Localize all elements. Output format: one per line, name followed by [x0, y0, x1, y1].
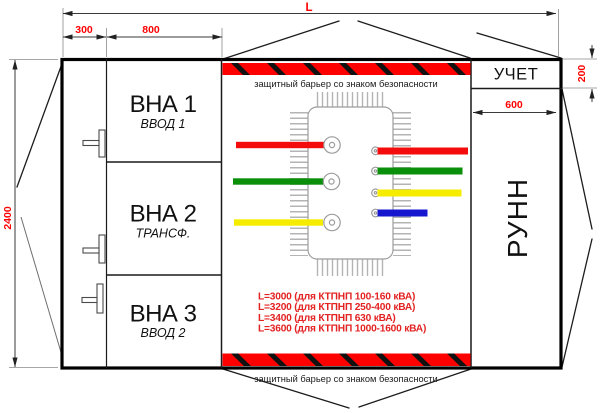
vna2-subtitle: ТРАНСФ.	[136, 227, 191, 241]
dimension-label-200: 200	[576, 65, 588, 83]
chip-pins-bottom	[316, 259, 386, 276]
safety-barrier-top: защитный барьер со знаком безопасности	[223, 63, 471, 89]
dimension-label-L: L	[305, 2, 312, 14]
dimension-uchet-height: 200	[563, 45, 597, 102]
busbar-right-blue	[378, 210, 428, 217]
dimension-label-2400: 2400	[2, 206, 14, 230]
busbar-right-green	[378, 168, 463, 175]
vna1-title: ВНА 1	[130, 91, 197, 118]
door-handle-vna1	[83, 130, 105, 157]
dimension-runn-width: 600	[473, 99, 556, 113]
length-option-4: L=3600 (для КТПНП 1000-1600 кВА)	[258, 324, 426, 335]
barrier-label-top: защитный барьер со знаком безопасности	[254, 79, 438, 89]
vna3-subtitle: ВВОД 2	[141, 326, 186, 340]
chip-pins-right	[393, 112, 411, 256]
section-vna2: ВНА 2 ТРАНСФ.	[130, 201, 197, 241]
busbar-right-yellow	[378, 190, 462, 197]
door-handle-vna2	[83, 235, 105, 263]
length-variants: L=3000 (для КТПНП 100-160 кВА) L=3200 (д…	[258, 292, 426, 335]
section-vna3: ВНА 3 ВВОД 2	[130, 301, 197, 341]
technical-drawing: L 300 800 2400 200 600	[0, 0, 600, 413]
barrier-label-bottom: защитный барьер со знаком безопасности	[254, 374, 438, 384]
length-option-2: L=3200 (для КТПНП 250-400 кВА)	[258, 302, 415, 313]
section-runn: РУНН	[502, 178, 533, 258]
dimension-label-300: 300	[75, 24, 93, 36]
dimension-label-600: 600	[505, 99, 523, 111]
vna3-title: ВНА 3	[130, 301, 197, 328]
section-uchet: УЧЕТ	[494, 66, 539, 84]
dimension-left-column: 300	[63, 24, 107, 57]
left-terminal-circles	[323, 137, 340, 231]
vna1-subtitle: ВВОД 1	[141, 117, 186, 131]
busbar-left-green	[233, 178, 323, 184]
safety-barrier-strip-bottom	[223, 354, 471, 367]
door-handle-vna3	[82, 284, 103, 313]
busbar-left-yellow	[234, 219, 323, 225]
dimension-vna-width: 800	[107, 24, 222, 57]
safety-barrier-strip-top	[223, 63, 471, 75]
uchet-title: УЧЕТ	[494, 66, 539, 84]
ktpnp-layout-drawing: L 300 800 2400 200 600	[0, 0, 600, 413]
length-option-1: L=3000 (для КТПНП 100-160 кВА)	[258, 292, 415, 303]
section-vna1: ВНА 1 ВВОД 1	[130, 91, 197, 131]
busbar-right-red	[378, 148, 469, 155]
busbar-left-red	[236, 142, 324, 148]
dimension-overall-length: L	[63, 2, 559, 57]
length-option-3: L=3400 (для КТПНП 630 кВА)	[258, 313, 396, 324]
dimension-label-800: 800	[142, 24, 160, 36]
transformer-chip-graphic	[233, 92, 468, 276]
dimension-height: 2400	[2, 60, 58, 368]
vna2-title: ВНА 2	[130, 201, 197, 228]
chip-pins-top	[316, 92, 386, 107]
runn-title: РУНН	[502, 178, 533, 258]
